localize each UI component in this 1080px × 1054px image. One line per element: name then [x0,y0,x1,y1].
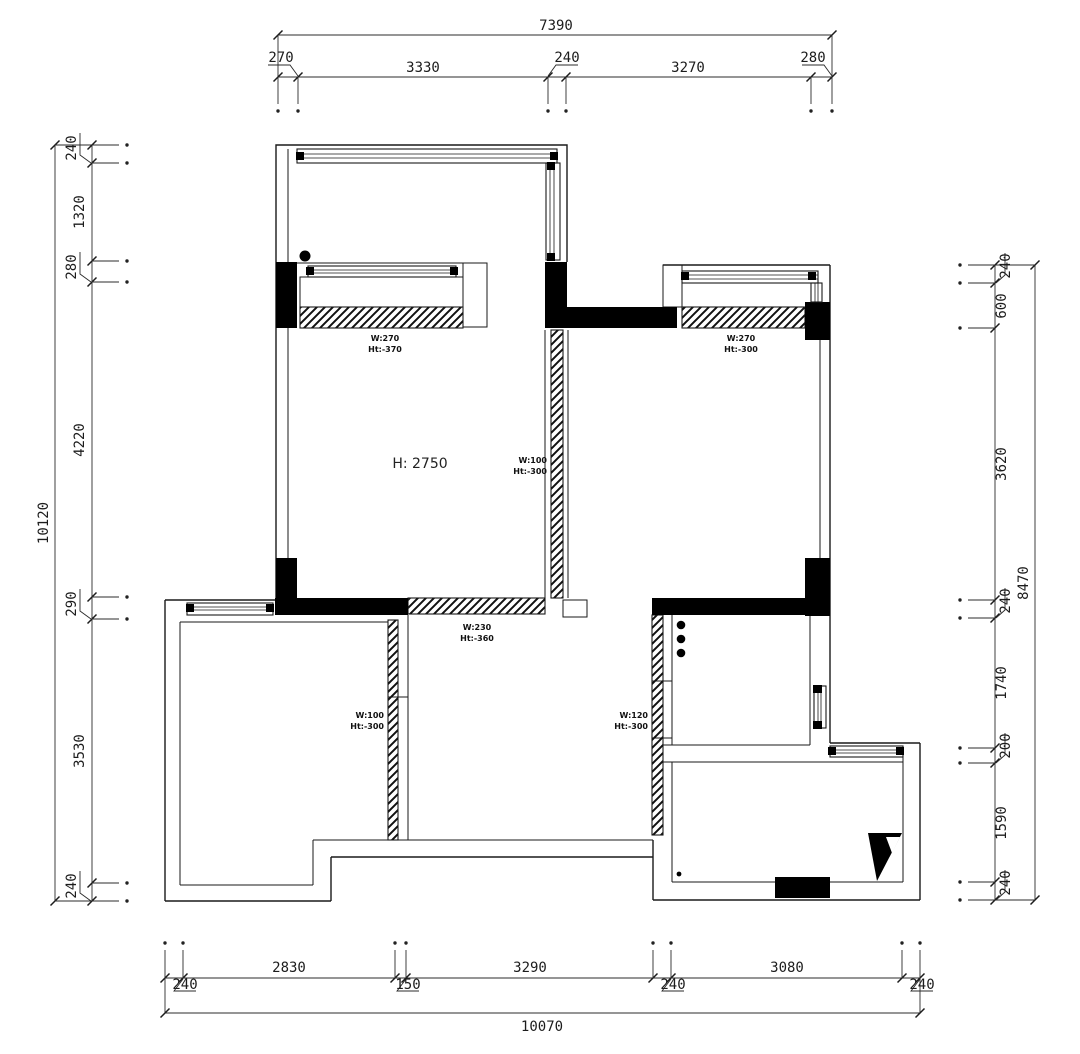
dimension-right: 8470 240 600 3620 240 1740 200 1590 240 [958,253,1039,905]
wall-label-corridor: W:230 Ht:-360 [460,623,494,643]
dim-top-total: 7390 [539,18,573,34]
dimension-left: 10120 240 1320 280 4220 290 3530 240 [36,133,129,906]
svg-text:270: 270 [268,50,293,66]
svg-text:1590: 1590 [994,806,1010,840]
svg-text:240: 240 [554,50,579,66]
window-bedroom [681,271,822,302]
wall-label-mid-vertical: W:100 Ht:-300 [513,456,547,476]
svg-text:Ht:-370: Ht:-370 [368,345,402,354]
wall-label-bay: W:270 Ht:-370 [368,334,402,354]
dim-bottom-total: 10070 [521,1019,563,1035]
svg-text:W:100: W:100 [356,711,385,720]
hatched-walls [300,307,805,840]
wall-label-kitchen-vertical: W:120 Ht:-300 [614,711,648,731]
svg-text:280: 280 [800,50,825,66]
flue-dot [677,635,686,644]
svg-text:2830: 2830 [272,960,306,976]
window-balcony-right [546,162,560,261]
svg-text:4220: 4220 [72,423,88,457]
svg-text:W:230: W:230 [463,623,492,632]
window-kitchen-right [813,685,826,729]
svg-text:Ht:-360: Ht:-360 [460,634,494,643]
svg-text:3330: 3330 [406,60,440,76]
svg-text:240: 240 [909,977,934,993]
svg-text:240: 240 [998,588,1014,613]
dimension-top: 7390 270 3330 240 3270 280 [268,18,837,113]
floor-plan-canvas: H: 2750 W:270 Ht:-370 W:270 Ht:-300 W:10… [0,0,1080,1049]
window-bay [306,266,458,277]
svg-text:Ht:-300: Ht:-300 [724,345,758,354]
svg-text:150: 150 [395,977,420,993]
small-dot [677,872,682,877]
svg-text:3080: 3080 [770,960,804,976]
svg-text:1320: 1320 [72,195,88,229]
svg-text:240: 240 [64,135,80,160]
dimension-bottom: 240 2830 150 3290 240 3080 240 10070 [161,941,935,1035]
wall-label-bedroom: W:270 Ht:-300 [724,334,758,354]
flue-dot [677,621,686,630]
ceiling-height-label: H: 2750 [392,456,447,472]
svg-text:Ht:-300: Ht:-300 [350,722,384,731]
svg-text:240: 240 [660,977,685,993]
svg-text:Ht:-300: Ht:-300 [513,467,547,476]
svg-text:Ht:-300: Ht:-300 [614,722,648,731]
window-bottom-right [828,746,904,757]
svg-text:240: 240 [998,253,1014,278]
flue-dot [677,649,686,658]
svg-text:3290: 3290 [513,960,547,976]
svg-text:3620: 3620 [994,447,1010,481]
svg-text:280: 280 [64,254,80,279]
window-balcony-top [296,149,558,163]
svg-text:W:100: W:100 [519,456,548,465]
svg-text:W:270: W:270 [371,334,400,343]
svg-text:240: 240 [998,870,1014,895]
svg-text:240: 240 [172,977,197,993]
floor-plan-page: H: 2750 W:270 Ht:-370 W:270 Ht:-300 W:10… [0,0,1080,1049]
outer-walls [165,145,920,901]
svg-text:1740: 1740 [994,666,1010,700]
dim-right-total: 8470 [1016,566,1032,600]
svg-text:3530: 3530 [72,734,88,768]
wall-label-left-vertical: W:100 Ht:-300 [350,711,384,731]
svg-text:600: 600 [994,293,1010,318]
svg-text:W:120: W:120 [620,711,649,720]
svg-text:W:270: W:270 [727,334,756,343]
column-dot [300,251,311,262]
svg-text:200: 200 [998,733,1014,758]
svg-text:3270: 3270 [671,60,705,76]
window-bottom-left [186,603,274,615]
dim-left-total: 10120 [36,502,52,544]
svg-text:290: 290 [64,591,80,616]
svg-text:240: 240 [64,873,80,898]
